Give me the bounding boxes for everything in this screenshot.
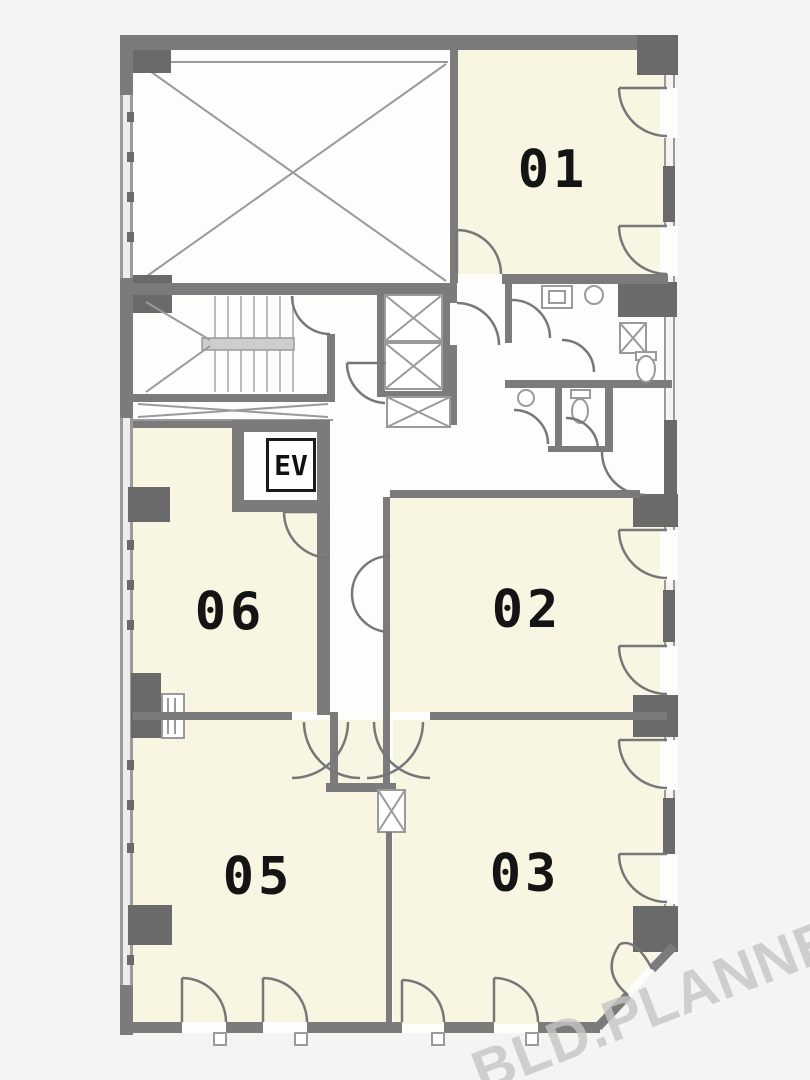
column [618,282,677,317]
column [633,494,678,527]
room-02-label: 02 [492,580,563,640]
toilet [637,356,655,382]
wash-basin [585,286,603,304]
floor-plan: 01 02 03 05 06 EV BLD.PLANNER [0,0,810,1080]
column [131,673,161,738]
room-06-label: 06 [195,582,266,642]
elevator-label: EV [266,438,316,492]
column [637,35,678,75]
room-03-label: 03 [490,844,561,904]
wash-basin [518,390,534,406]
floor-plan-drawing [0,0,810,1080]
room-01-label: 01 [518,140,589,200]
column [128,905,172,945]
elevator-shaft [377,283,450,427]
stair-handrail [202,338,294,350]
column [128,487,170,522]
room-05-label: 05 [223,847,294,907]
